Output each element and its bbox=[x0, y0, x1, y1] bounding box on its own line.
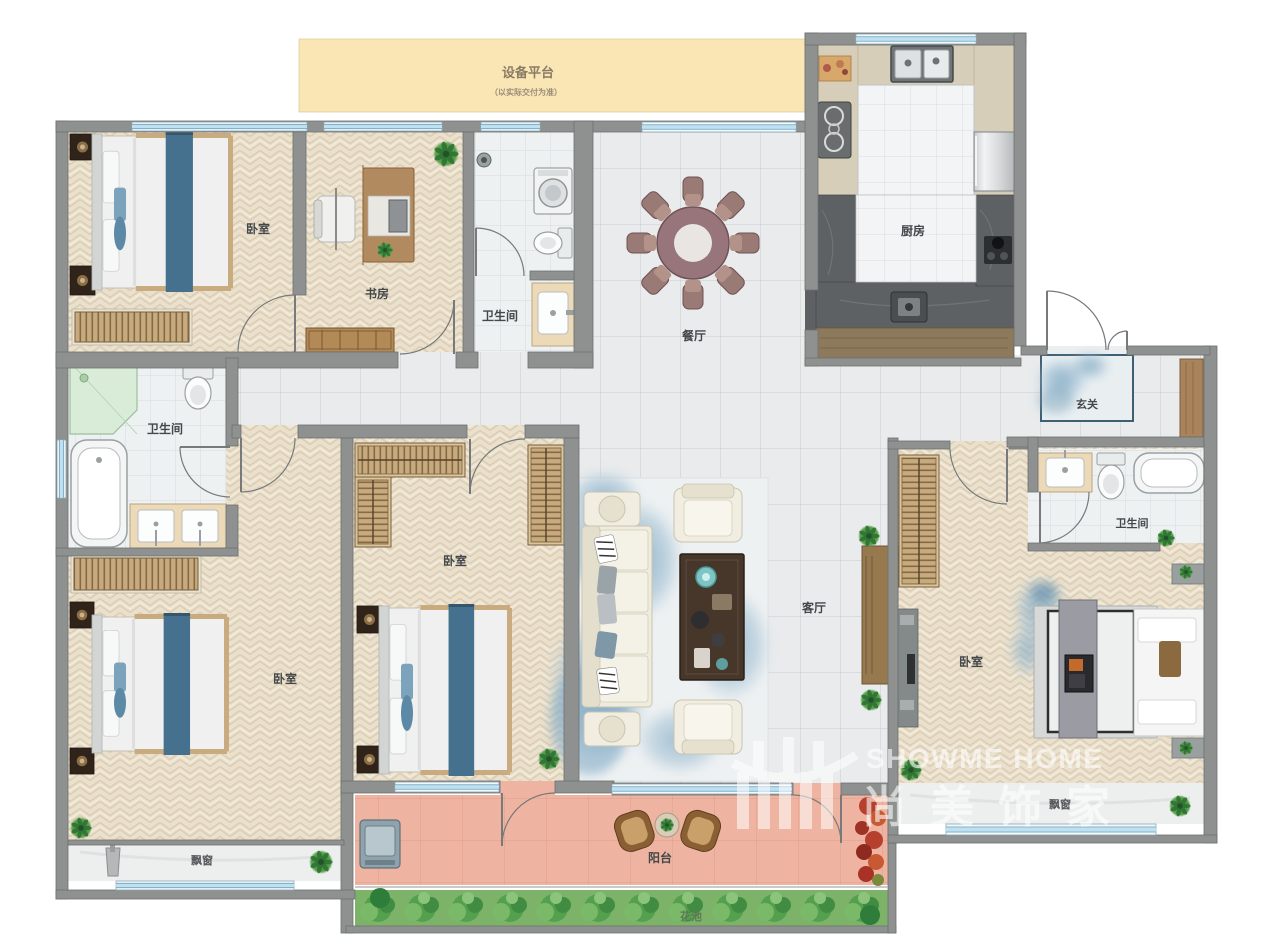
svg-text:阳台: 阳台 bbox=[648, 850, 672, 865]
svg-text:书房: 书房 bbox=[365, 286, 389, 301]
svg-text:飘窗: 飘窗 bbox=[191, 853, 213, 867]
svg-text:玄关: 玄关 bbox=[1076, 397, 1098, 411]
svg-text:卫生间: 卫生间 bbox=[147, 421, 183, 436]
svg-text:SHOWME HOME: SHOWME HOME bbox=[866, 743, 1103, 774]
svg-text:卫生间: 卫生间 bbox=[482, 308, 518, 323]
svg-text:卫生间: 卫生间 bbox=[1116, 516, 1149, 530]
svg-text:卧室: 卧室 bbox=[959, 654, 983, 669]
svg-text:厨房: 厨房 bbox=[901, 223, 925, 238]
svg-text:卧室: 卧室 bbox=[246, 221, 270, 236]
svg-text:花池: 花池 bbox=[680, 909, 702, 923]
svg-text:设备平台: 设备平台 bbox=[502, 65, 554, 80]
svg-text:尚美饰家: 尚美饰家 bbox=[862, 783, 1134, 832]
svg-text:客厅: 客厅 bbox=[801, 600, 826, 615]
svg-text:餐厅: 餐厅 bbox=[682, 328, 706, 343]
svg-text:卧室: 卧室 bbox=[273, 671, 297, 686]
svg-text:（以实际交付为准）: （以实际交付为准） bbox=[490, 87, 562, 97]
svg-text:卧室: 卧室 bbox=[443, 553, 467, 568]
